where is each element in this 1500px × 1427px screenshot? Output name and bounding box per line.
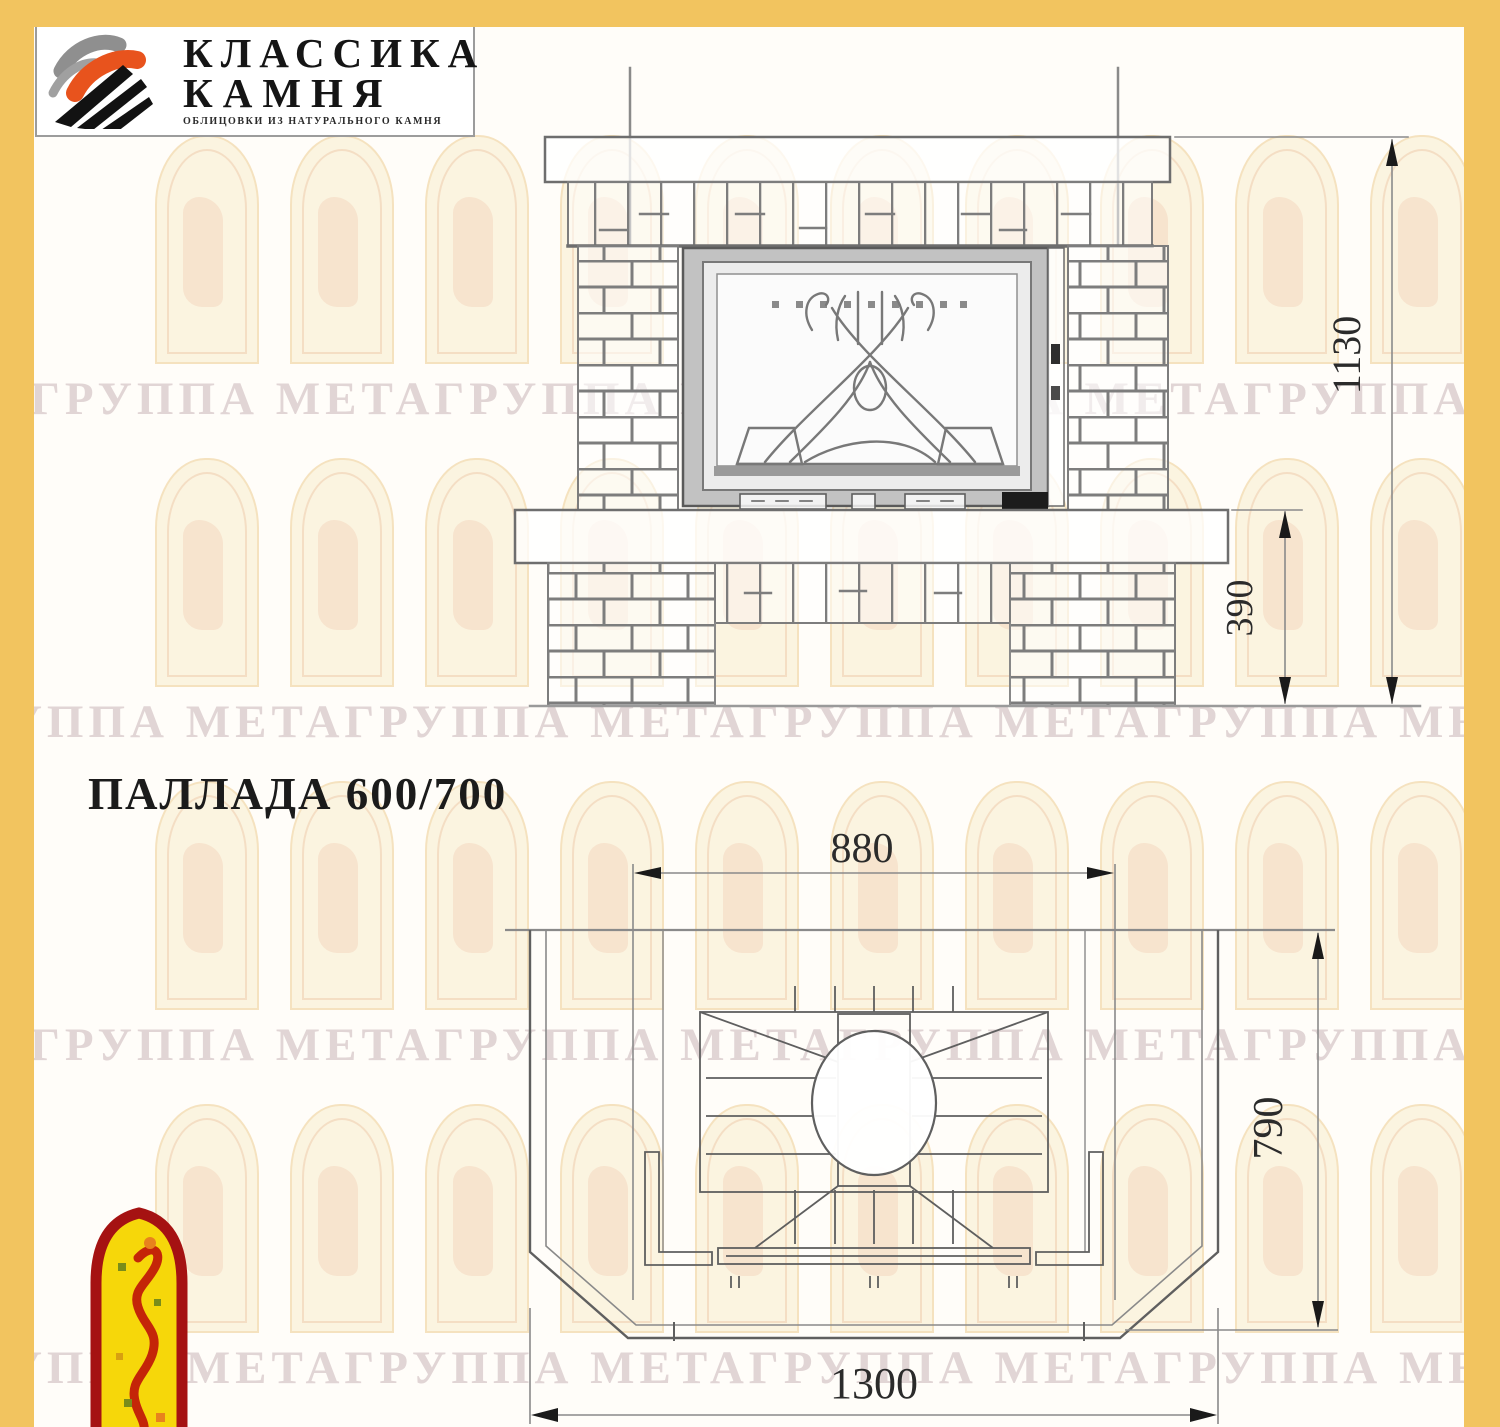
front-view-drawing: 1130 390 xyxy=(515,68,1420,706)
insert-plan xyxy=(645,986,1103,1288)
brand-name-line1: КЛАССИКА xyxy=(183,33,485,73)
dim-label-1130: 1130 xyxy=(1324,316,1369,395)
left-side-bracket xyxy=(645,1152,712,1265)
meta-firebird-emblem xyxy=(88,1203,190,1427)
dim-label-880: 880 xyxy=(831,826,894,872)
dim-label-390: 390 xyxy=(1219,580,1261,637)
lower-vents xyxy=(740,494,965,509)
stone-graphic xyxy=(43,29,183,129)
frame-strip-right xyxy=(1464,0,1500,1427)
right-pedestal xyxy=(1010,563,1175,706)
dimension-880: 880 xyxy=(634,826,1114,879)
frame-strip-top xyxy=(0,0,1500,27)
dim-label-1300: 1300 xyxy=(830,1359,918,1408)
right-brick-column xyxy=(1068,246,1168,510)
wood-niche xyxy=(715,623,1010,706)
frame-strip-left xyxy=(0,0,34,1427)
dimension-790: 790 xyxy=(1125,932,1338,1330)
firebox xyxy=(683,248,1064,509)
plan-view-drawing: 880 790 1300 xyxy=(505,826,1338,1424)
flue-collar-circle xyxy=(812,1031,936,1175)
hearth-shelf xyxy=(515,510,1228,563)
door-hinge-strip xyxy=(1048,248,1064,506)
dimension-1130: 1130 xyxy=(1175,137,1408,704)
brand-name-line2: КАМНЯ xyxy=(183,73,485,113)
brand-tagline: ОБЛИЦОВКИ ИЗ НАТУРАЛЬНОГО КАМНЯ xyxy=(183,116,485,127)
fireplace-technical-drawing: 1130 390 xyxy=(0,0,1500,1427)
right-side-bracket xyxy=(1036,1152,1103,1265)
firebox-sill xyxy=(714,466,1020,476)
page: ГРУППА МЕТАГРУППА МЕТАГРУППА МЕТАГРУППА … xyxy=(0,0,1500,1427)
dimension-390: 390 xyxy=(1219,510,1302,704)
mantel-shelf xyxy=(545,137,1170,182)
dim-label-790: 790 xyxy=(1246,1097,1292,1160)
brand-text: КЛАССИКА КАМНЯ ОБЛИЦОВКИ ИЗ НАТУРАЛЬНОГО… xyxy=(183,27,485,127)
left-brick-column xyxy=(578,246,678,510)
brand-logo: КЛАССИКА КАМНЯ ОБЛИЦОВКИ ИЗ НАТУРАЛЬНОГО… xyxy=(35,25,475,137)
model-title: ПАЛЛАДА 600/700 xyxy=(88,768,507,820)
left-pedestal xyxy=(548,563,715,706)
door-latch xyxy=(1051,386,1060,400)
ash-drawer xyxy=(1002,492,1048,509)
door-handle xyxy=(1051,344,1060,364)
